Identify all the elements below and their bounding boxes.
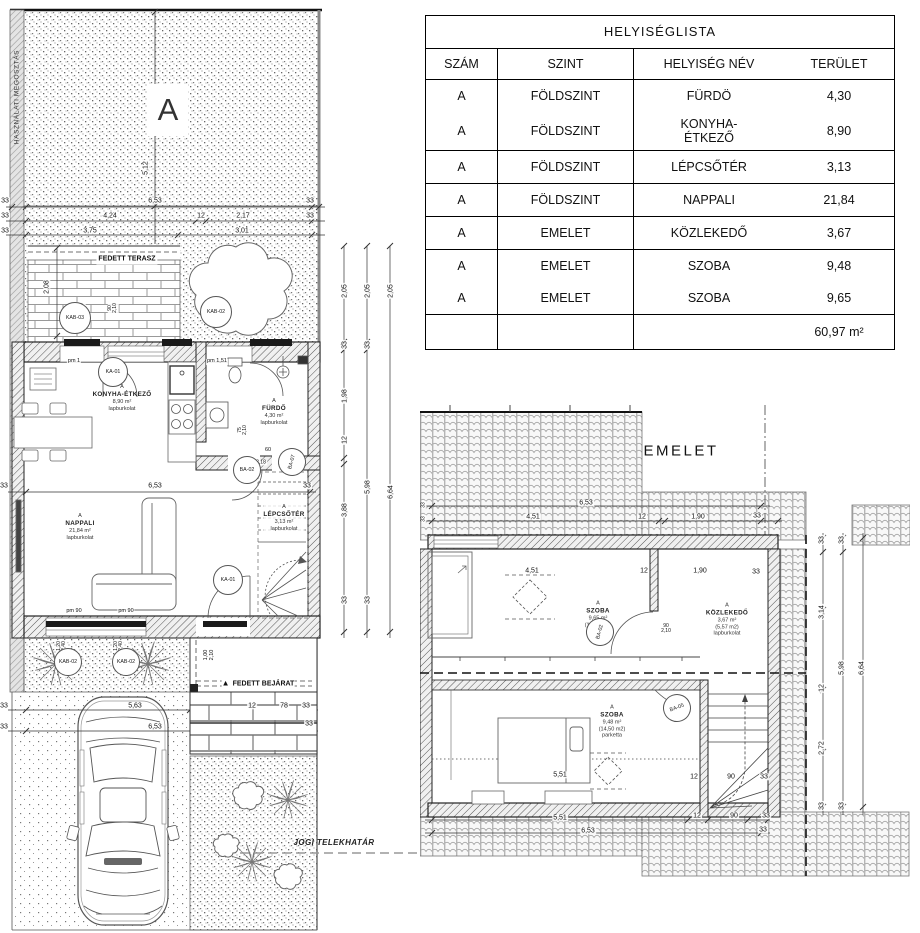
dim-label: 6,53 <box>147 197 163 204</box>
dim-label: 3,14 <box>818 604 825 620</box>
bed <box>451 690 590 783</box>
door-tag: KA-01 <box>213 565 243 595</box>
dim-label: 90 <box>729 812 739 819</box>
table-cell: FÖLDSZINT <box>498 80 634 112</box>
right-dimension-chains <box>341 243 393 638</box>
dim-label: 12 <box>689 773 699 780</box>
table-cell: A <box>426 282 498 314</box>
dim-label: 1,90 <box>692 567 708 574</box>
table-cell: SZOBA <box>634 282 784 314</box>
table-row: AEMELETKÖZLEKEDŐ3,67 <box>426 217 894 250</box>
dim-label: 33 <box>305 212 315 219</box>
table-cell: 3,13 <box>784 151 894 183</box>
wardrobe <box>428 552 472 638</box>
window <box>434 536 498 548</box>
room-list-table: HELYISÉGLISTA SZÁM SZINT HELYISÉG NÉV TE… <box>425 15 895 350</box>
dim-label: pm 90 <box>65 609 82 615</box>
dim-label: 33 <box>421 515 426 523</box>
table-cell: A <box>426 151 498 183</box>
dim-label: 90 <box>726 773 736 780</box>
dim-label: 5,63 <box>127 702 143 709</box>
table-cell: 3,67 <box>784 217 894 249</box>
room-label-living: A NAPPALI 21,84 m² lapburkolat <box>65 513 94 541</box>
dim-label: 12 <box>639 567 649 574</box>
total-area: 60,97 m² <box>784 315 894 349</box>
dim-label: 12 <box>196 212 206 219</box>
dim-label: 5,51 <box>552 771 568 778</box>
dim-label: 33 <box>0 197 10 204</box>
table-cell: EMELET <box>498 250 634 282</box>
room-label-kitchen: A KONYHA-ÉTKEZŐ 8,90 m² lapburkolat <box>93 384 152 412</box>
front-garden <box>24 638 190 692</box>
dim-label: 33 <box>305 197 315 204</box>
dim-label: 33 <box>0 702 9 709</box>
dim-label: 33 <box>0 212 10 219</box>
column-header: TERÜLET <box>784 49 894 79</box>
table-cell: A <box>426 250 498 282</box>
entrance-label: ▲FEDETT BEJÁRAT <box>222 679 295 690</box>
dim-label: 2,72 <box>818 740 825 756</box>
dim-label: 2,08 <box>43 279 50 295</box>
usage-division-note: HASZNÁLATI MEGOSZTÁS <box>14 50 21 144</box>
dim-label: pm 1 <box>67 359 81 365</box>
dim-label: 12 <box>692 812 702 819</box>
entrance-marker-icon: ▲ <box>222 679 230 688</box>
table-cell: FÜRDÖ <box>634 80 784 112</box>
table-cell: FÖLDSZINT <box>498 184 634 216</box>
dim-label: 78 <box>279 702 289 709</box>
dim-label: 1,90 <box>690 513 706 520</box>
dim-label: 12 <box>247 702 257 709</box>
upper-floor-title: EMELET <box>643 443 718 462</box>
table-cell: FÖLDSZINT <box>498 151 634 183</box>
upper-floor-plan-svg <box>420 405 910 880</box>
table-row: AFÖLDSZINTLÉPCSŐTÉR3,13 <box>426 151 894 184</box>
dim-label: 90 2,10 <box>108 302 119 314</box>
column-header: SZINT <box>498 49 634 79</box>
room-label-bathroom: A FÜRDŐ 4,30 m² lapburkolat <box>261 398 288 426</box>
dim-label: 33 <box>761 812 771 819</box>
door-tag: BA-02 <box>233 456 261 484</box>
dim-label: 33 <box>759 773 769 780</box>
table-row: AFÖLDSZINTNAPPALI21,84 <box>426 184 894 217</box>
dim-label: 5,51 <box>552 814 568 821</box>
plot-boundary-label: JOGI TELEKHATÁR <box>294 838 375 848</box>
dim-label: 6,53 <box>578 499 594 506</box>
table-cell: A <box>426 112 498 150</box>
table-cell: 9,48 <box>784 250 894 282</box>
table-cell: KÖZLEKEDŐ <box>634 217 784 249</box>
dim-label: 33 <box>758 826 768 833</box>
dim-label: 1,00 2,10 <box>204 649 216 662</box>
table-cell: NAPPALI <box>634 184 784 216</box>
dim-label: 33 <box>421 501 426 509</box>
table-row: AEMELETSZOBA9,65 <box>426 282 894 315</box>
dim-label: 33 <box>364 595 371 605</box>
door-arc <box>611 612 653 654</box>
bathroom-fixtures <box>206 356 308 428</box>
dim-label: 12 <box>818 683 825 693</box>
dim-label: 33 <box>304 720 314 727</box>
stairwell <box>258 472 308 618</box>
dim-label: 3,01 <box>234 227 250 234</box>
room-label-szoba-back: A SZOBA 9,48 m² (14,50 m2) parketta <box>599 704 626 739</box>
dim-label: 4,24 <box>102 212 118 219</box>
dim-label: 33 <box>0 227 10 234</box>
dim-label: 75 2,10 <box>238 424 249 436</box>
dim-label: 6,53 <box>147 723 163 730</box>
door-tag: KAB-02 <box>200 296 232 328</box>
dim-label: 33 <box>818 801 825 811</box>
dim-label: 33 <box>751 568 761 575</box>
dim-label: 33 <box>818 535 825 545</box>
dim-label: 2,05 <box>364 283 371 299</box>
dim-label: 6,53 <box>147 482 163 489</box>
dim-label: 1,98 <box>341 388 348 404</box>
cabinets <box>472 791 592 804</box>
door-tag: KAB-03 <box>59 302 91 334</box>
dim-label: 12 <box>637 513 647 520</box>
dim-label: pm 90 <box>117 609 134 615</box>
table-cell: LÉPCSŐTÉR <box>634 151 784 183</box>
dim-label: 33 <box>838 801 845 811</box>
living-room-furniture <box>16 498 176 610</box>
dim-label: 6,53 <box>580 827 596 834</box>
table-title: HELYISÉGLISTA <box>426 16 894 49</box>
table-cell: A <box>426 80 498 112</box>
table-cell: 8,90 <box>784 112 894 150</box>
dim-label: 33 <box>302 482 312 489</box>
table-cell: A <box>426 217 498 249</box>
dim-label: 4,51 <box>524 567 540 574</box>
column-header: SZÁM <box>426 49 498 79</box>
dim-label: 33 <box>341 595 348 605</box>
kitchen-bath-wall <box>196 342 206 442</box>
column-header: HELYISÉG NÉV <box>634 49 784 79</box>
table-cell: EMELET <box>498 217 634 249</box>
dim-label: 33 <box>364 340 371 350</box>
stairs <box>708 694 768 808</box>
dim-label: 60 <box>264 448 272 454</box>
dim-label: 5,98 <box>364 479 371 495</box>
door-tag: KAB-02 <box>112 648 140 676</box>
architectural-drawing-page: HELYISÉGLISTA SZÁM SZINT HELYISÉG NÉV TE… <box>0 0 920 933</box>
dim-label: 6,64 <box>387 484 394 500</box>
table-cell: 4,30 <box>784 80 894 112</box>
dim-label: 33 <box>752 512 762 519</box>
room-label-stairwell: A LÉPCSŐTÉR 3,13 m² lapburkolat <box>263 504 304 532</box>
dim-label: 12 <box>341 435 348 445</box>
table-total-row: 60,97 m² <box>426 315 894 349</box>
door-tag: KA-01 <box>98 357 128 387</box>
table-cell: 9,65 <box>784 282 894 314</box>
roof-window <box>505 575 555 619</box>
unit-marker: A <box>148 84 188 136</box>
door-tag: KAB-02 <box>54 648 82 676</box>
dim-label: 33 <box>838 535 845 545</box>
table-cell: 21,84 <box>784 184 894 216</box>
table-cell: A <box>426 184 498 216</box>
roof-window <box>590 753 626 789</box>
dim-label: 2,17 <box>235 212 251 219</box>
dim-label: 2,05 <box>387 283 394 299</box>
dim-label: 5,12 <box>142 160 149 176</box>
dim-label: 3,75 <box>82 227 98 234</box>
dim-label: 33 <box>341 340 348 350</box>
dim-label: 5,98 <box>838 660 845 676</box>
room-label-hall: A KÖZLEKEDŐ 3,67 m² (5,57 m2) lapburkola… <box>706 602 748 637</box>
dim-label: pm 1,51 <box>206 359 228 365</box>
table-cell: KONYHA- ÉTKEZŐ <box>634 112 784 150</box>
table-row: AFÖLDSZINTFÜRDÖ4,30 <box>426 80 894 112</box>
dim-label: 90 2,10 <box>660 624 672 635</box>
terrace-label: FEDETT TERASZ <box>96 256 157 265</box>
table-cell: SZOBA <box>634 250 784 282</box>
table-body: AFÖLDSZINTFÜRDÖ4,30AFÖLDSZINTKONYHA- ÉTK… <box>426 80 894 315</box>
dim-label: 6,64 <box>858 660 865 676</box>
dim-label: 2,05 <box>341 283 348 299</box>
dim-label: 4,51 <box>525 513 541 520</box>
table-row: AEMELETSZOBA9,48 <box>426 250 894 282</box>
dim-label: 33 <box>301 702 311 709</box>
table-cell: EMELET <box>498 282 634 314</box>
table-row: AFÖLDSZINTKONYHA- ÉTKEZŐ8,90 <box>426 112 894 151</box>
dim-label: 3,88 <box>341 502 348 518</box>
table-header: SZÁM SZINT HELYISÉG NÉV TERÜLET <box>426 49 894 80</box>
dim-label: 33 <box>0 482 9 489</box>
dim-label: 33 <box>0 723 9 730</box>
ground-floor-plan-svg <box>0 0 420 933</box>
table-cell: FÖLDSZINT <box>498 112 634 150</box>
